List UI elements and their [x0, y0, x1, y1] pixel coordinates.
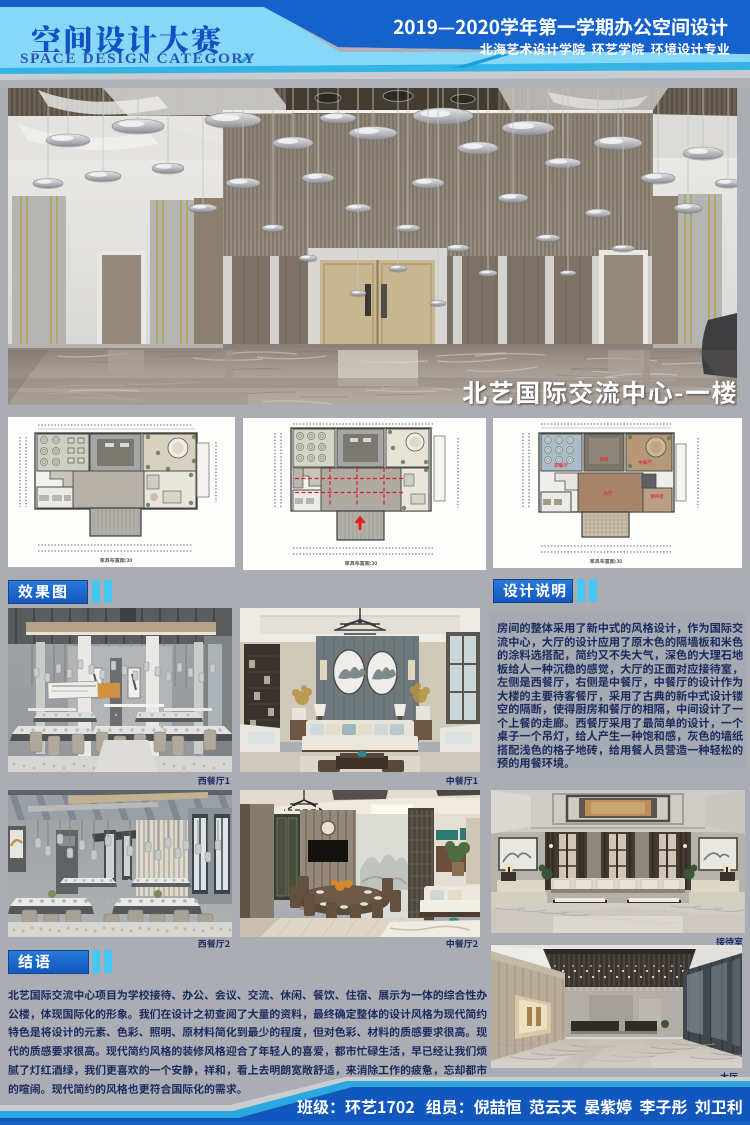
svg-text:厨房: 厨房	[600, 457, 609, 463]
svg-text:大厅: 大厅	[604, 491, 613, 497]
svg-text:西餐厅: 西餐厅	[554, 463, 568, 469]
svg-text:中餐厅: 中餐厅	[638, 460, 652, 466]
svg-text:家具布置图:30: 家具布置图:30	[345, 560, 378, 567]
svg-text:接待室: 接待室	[650, 494, 664, 500]
svg-text:家具布置图:30: 家具布置图:30	[590, 558, 623, 565]
svg-text:家具布置图:30: 家具布置图:30	[100, 557, 133, 564]
